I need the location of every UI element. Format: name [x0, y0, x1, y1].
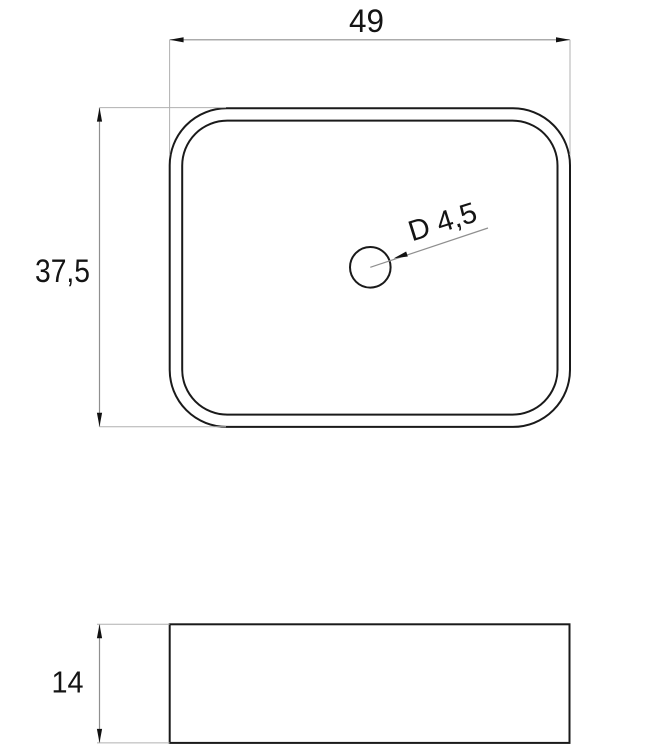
- svg-text:37,5: 37,5: [35, 253, 90, 289]
- svg-text:49: 49: [349, 3, 384, 39]
- svg-text:14: 14: [52, 665, 84, 700]
